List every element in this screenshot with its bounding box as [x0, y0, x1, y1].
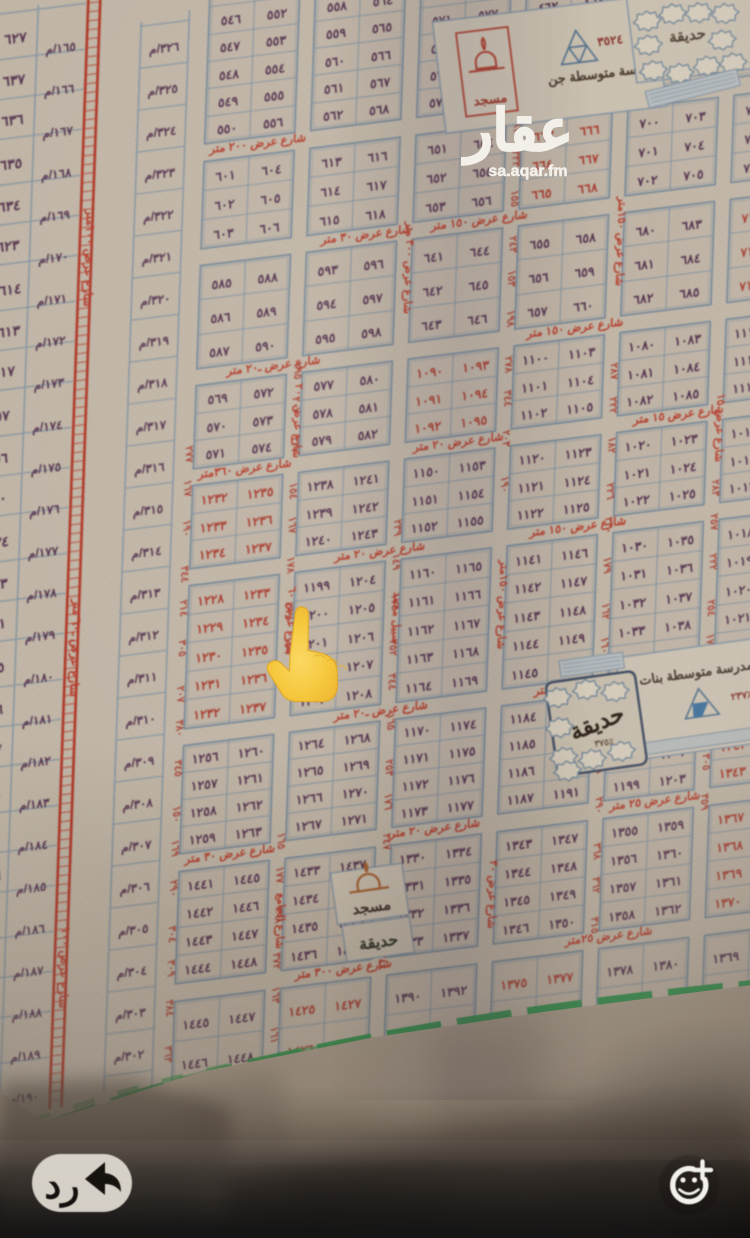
- svg-text:sa.aqar.fm: sa.aqar.fm: [488, 163, 567, 180]
- svg-text:عقار: عقار: [461, 99, 573, 165]
- svg-text:رد: رد: [44, 1165, 79, 1208]
